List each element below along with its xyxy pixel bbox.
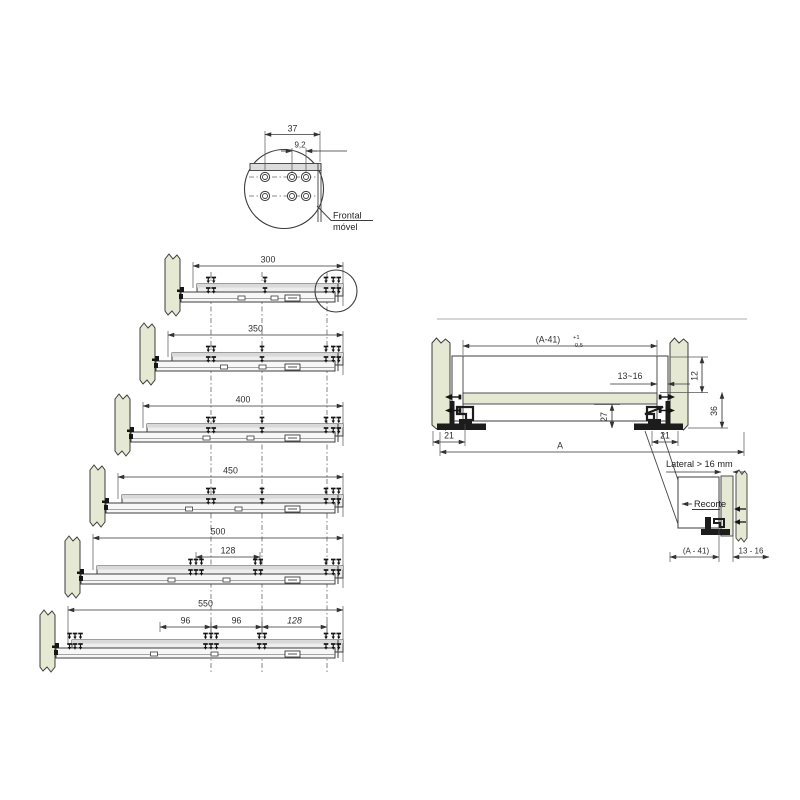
- recorte-label: Recorte: [694, 499, 726, 509]
- detail-leader-line: [645, 431, 678, 524]
- detail-bubble: [245, 150, 324, 229]
- length-dim-label: 450: [223, 466, 238, 476]
- front-hole-pattern-detail: 37 9,2 Frontal móvel: [245, 124, 374, 233]
- detail-dim-13-16-label: 13 - 16: [739, 547, 764, 556]
- length-dim-label: 400: [236, 395, 251, 405]
- cabinet-post: [90, 465, 105, 527]
- dim-side-thickness-label: 13~16: [618, 371, 643, 381]
- drawer-slide-drawing: 37 9,2 Frontal móvel 3003504004505001285…: [0, 0, 800, 800]
- hole-spacing-label: 128: [287, 616, 302, 626]
- slide-row-450: 450: [90, 465, 343, 527]
- cabinet-side-left: [432, 338, 450, 430]
- cabinet-post: [65, 536, 80, 598]
- length-dim-label: 550: [198, 599, 213, 609]
- detail-leader-line: [662, 432, 678, 480]
- length-dim-label: 350: [248, 324, 263, 334]
- slide-row-400: 400: [115, 394, 343, 456]
- slide-row-550: 5509696128: [40, 599, 343, 673]
- cabinet-post: [165, 254, 180, 316]
- slide-row-500: 500128: [65, 527, 343, 599]
- dim-12-label: 12: [690, 371, 700, 381]
- frontal-label-line2: móvel: [333, 222, 358, 232]
- cabinet-post: [40, 610, 55, 672]
- tolerance-minus: -0,5: [573, 343, 583, 349]
- detail-dim-a41-label: (A - 41): [683, 547, 710, 556]
- slide-rows-layer: 3003504004505001285509696128: [40, 254, 343, 672]
- dim-21-right-label: 21: [660, 431, 670, 441]
- hole-spacing-label: 96: [181, 616, 191, 626]
- dim-a-label: A: [557, 441, 563, 451]
- hole-spacing-label: 128: [221, 546, 236, 556]
- dim-27-label: 27: [599, 412, 609, 422]
- inner-rail: [106, 503, 335, 513]
- cabinet-post: [115, 394, 130, 456]
- rail-top-band: [250, 164, 321, 171]
- length-dim-label: 500: [211, 527, 226, 537]
- dim-36-label: 36: [709, 406, 719, 416]
- inner-rail: [181, 292, 335, 302]
- cabinet-lateral-section: [736, 470, 747, 542]
- lateral-detail-view: Lateral > 16 mm Recorte (A - 41) 13 - 16: [645, 431, 769, 562]
- hole-spacing-label: 96: [232, 616, 242, 626]
- tolerance-plus: +1: [573, 335, 580, 341]
- drawer-bottom-panel: [463, 393, 657, 404]
- length-dim-label: 300: [261, 255, 276, 265]
- cabinet-post: [140, 323, 155, 385]
- slide-row-350: 350: [140, 323, 343, 385]
- frontal-label-line1: Frontal: [333, 211, 362, 221]
- dim-9-2-label: 9,2: [294, 141, 306, 150]
- cross-section-view: (A-41) +1 -0,5 13~16 12 36 27 21 21 A: [432, 319, 747, 456]
- inner-rail: [131, 432, 335, 442]
- inner-rail: [156, 361, 335, 371]
- dim-inner-width-label: (A-41): [536, 335, 561, 345]
- technical-drawing-canvas: 37 9,2 Frontal móvel 3003504004505001285…: [0, 0, 800, 800]
- drawer-box-outline: [452, 356, 668, 421]
- dim-37-label: 37: [288, 124, 298, 134]
- lateral-label: Lateral > 16 mm: [666, 459, 733, 469]
- dim-21-left-label: 21: [444, 431, 454, 441]
